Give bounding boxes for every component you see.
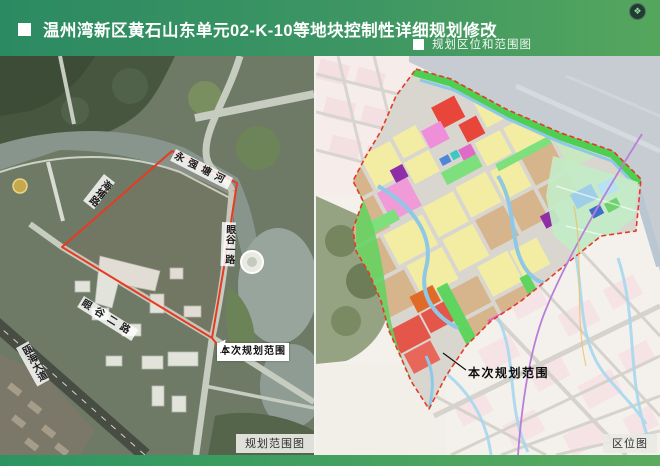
satellite-map-panel: 永强塘河 海埔路 眼谷一路 眼谷二路 瓯海大道 本次规划范围 规划范围图 [0, 56, 316, 455]
corner-badge-icon[interactable]: ❖ [629, 3, 646, 20]
zoning-map-panel: 本次规划范围 区位图 [316, 56, 660, 455]
header: 温州湾新区黄石山东单元02-K-10等地块控制性详细规划修改 规划区位和范围图 … [0, 0, 660, 56]
road-label-east: 眼谷一路 [220, 222, 236, 266]
planning-article-image: 温州湾新区黄石山东单元02-K-10等地块控制性详细规划修改 规划区位和范围图 … [0, 0, 660, 466]
left-map-caption: 规划范围图 [236, 434, 314, 453]
right-map-callout: 本次规划范围 [468, 364, 549, 381]
right-map-caption: 区位图 [603, 434, 657, 453]
title-bullet-icon [18, 23, 31, 36]
section-label: 规划区位和范围图 [432, 36, 532, 52]
section-bullet-icon [413, 39, 424, 50]
footer-bar [0, 455, 660, 466]
satellite-map [0, 56, 314, 455]
left-map-callout: 本次规划范围 [217, 343, 289, 361]
map-area: 永强塘河 海埔路 眼谷一路 眼谷二路 瓯海大道 本次规划范围 规划范围图 [0, 56, 660, 455]
zoning-map [316, 56, 660, 455]
